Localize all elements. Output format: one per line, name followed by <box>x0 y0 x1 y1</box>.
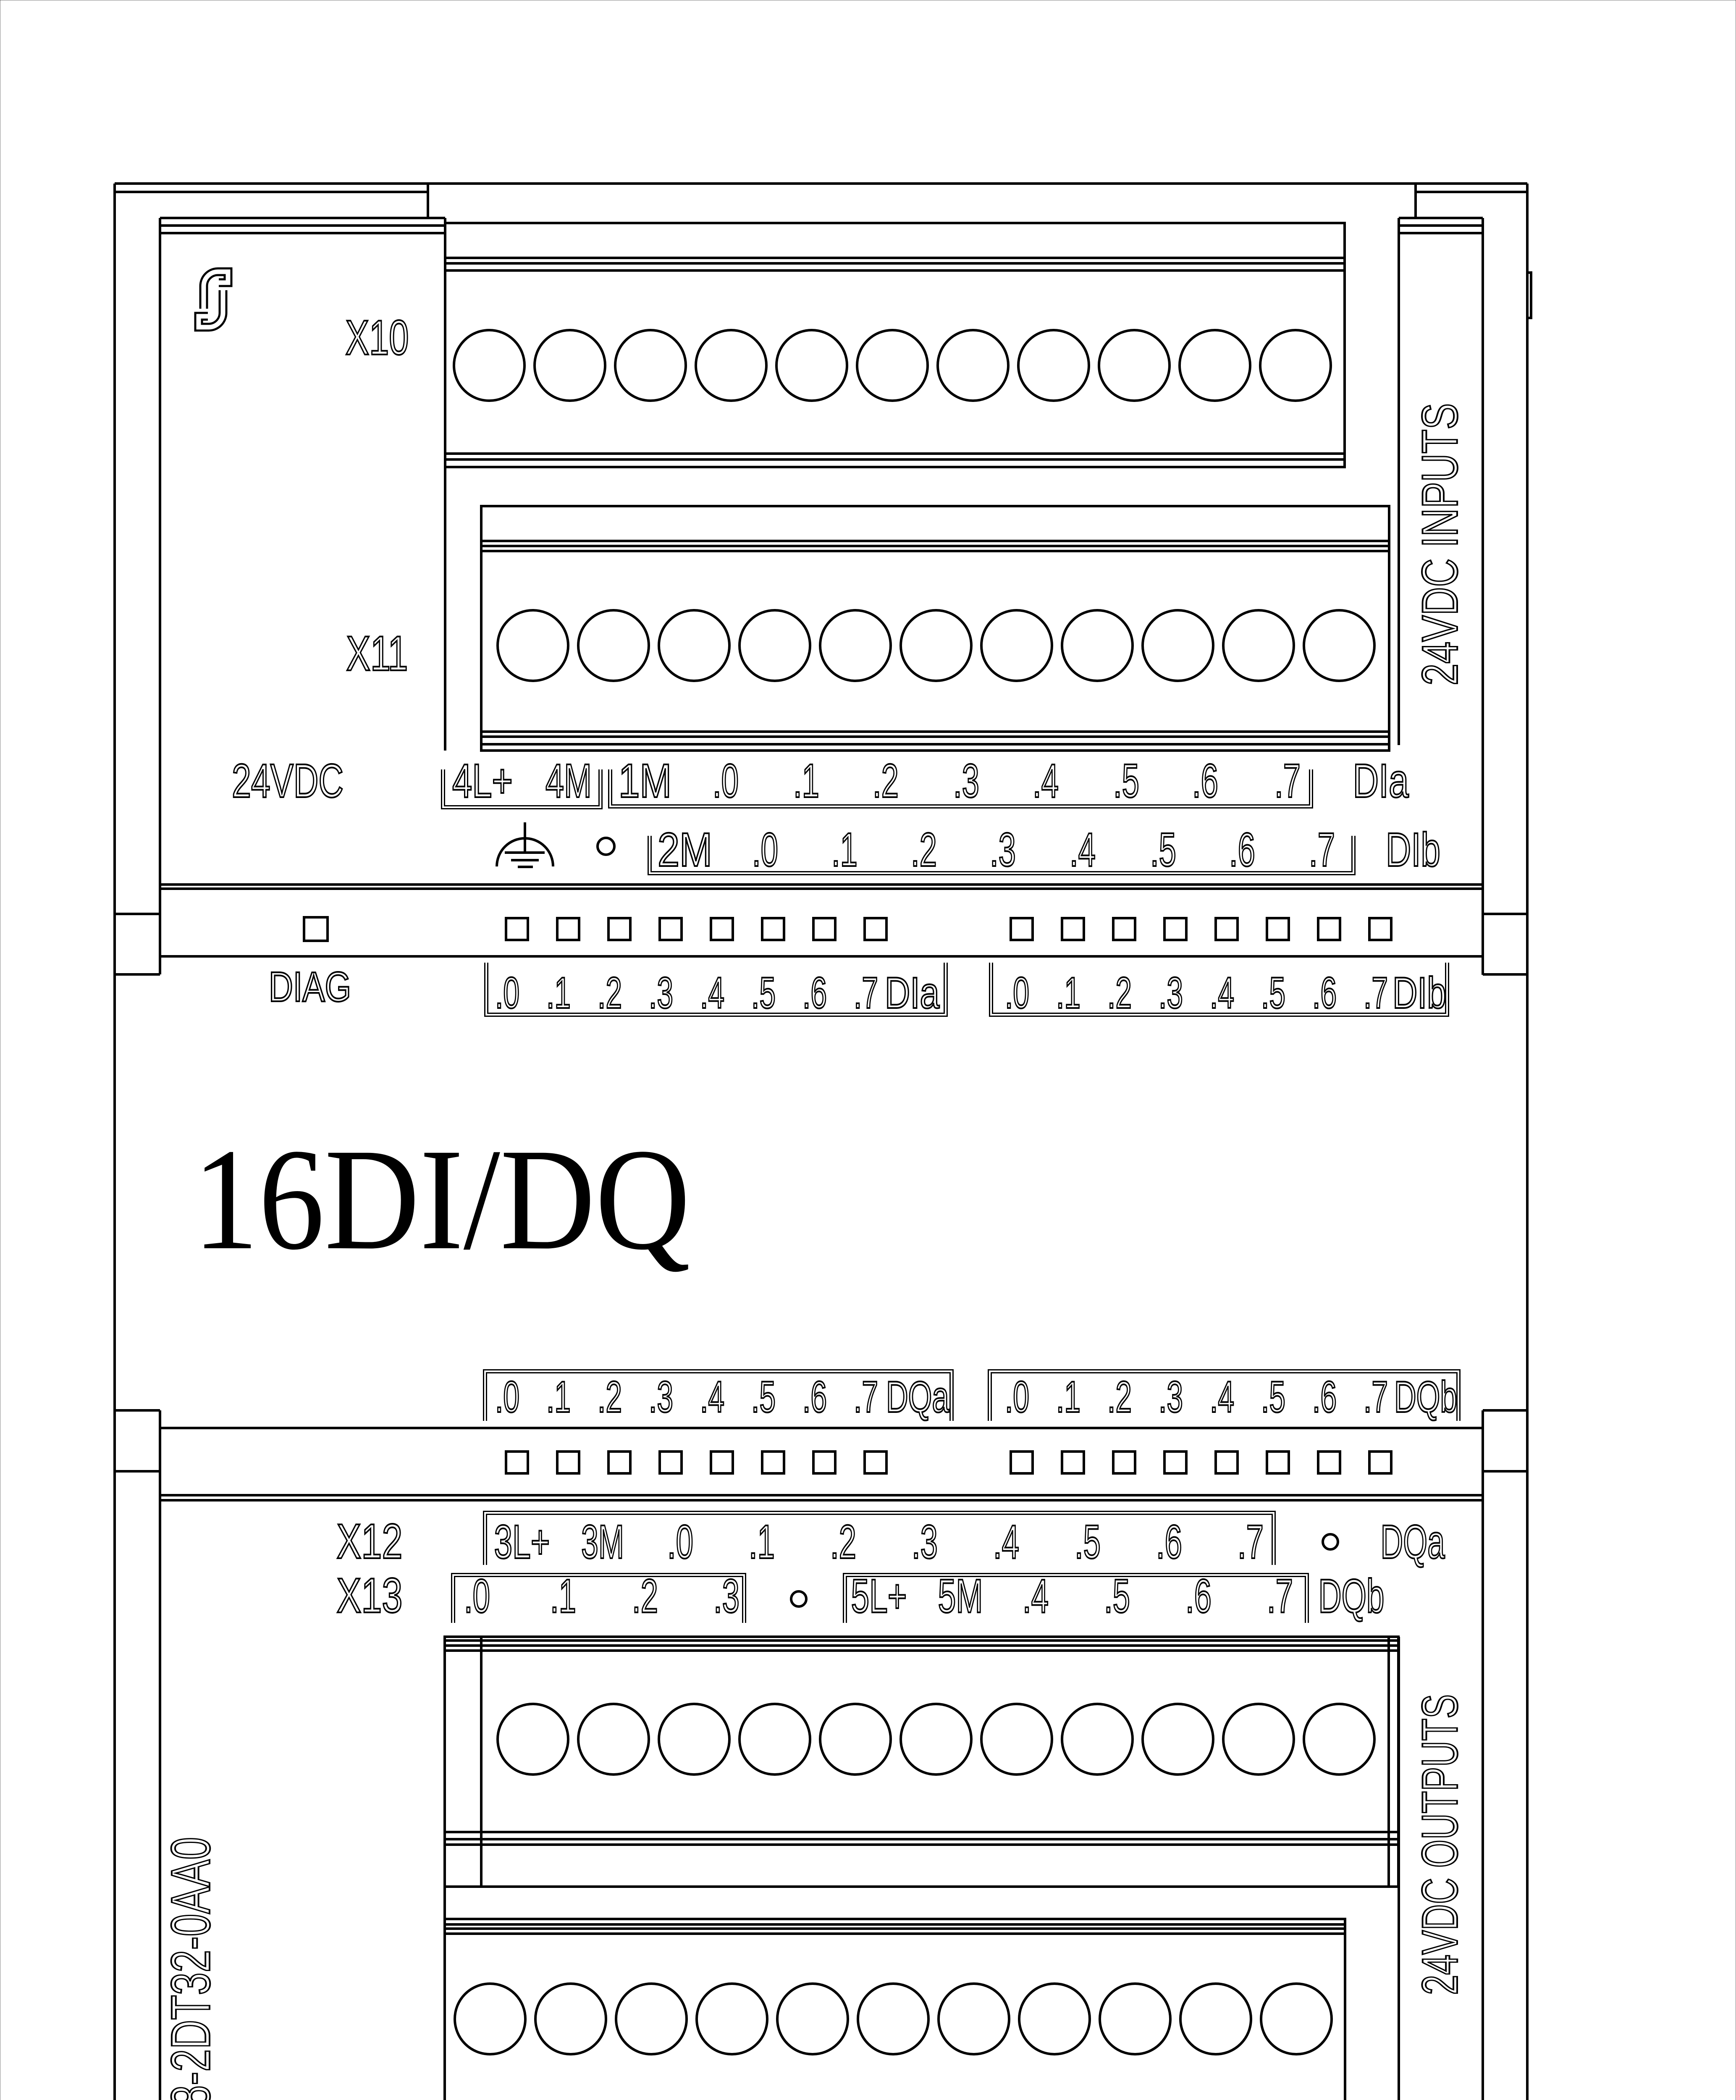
svg-text:.2: .2 <box>632 1570 658 1622</box>
svg-text:.7: .7 <box>1309 823 1335 876</box>
svg-text:.6: .6 <box>1192 754 1218 807</box>
svg-text:.4: .4 <box>700 969 724 1018</box>
svg-text:.5: .5 <box>1150 823 1176 876</box>
svg-text:.6: .6 <box>802 969 827 1018</box>
svg-text:.3: .3 <box>713 1570 740 1622</box>
svg-text:.6: .6 <box>1185 1570 1212 1622</box>
svg-text:.5: .5 <box>1075 1515 1101 1568</box>
svg-text:.4: .4 <box>1023 1570 1049 1622</box>
svg-text:.7: .7 <box>854 969 878 1018</box>
svg-text:.6: .6 <box>1156 1515 1182 1568</box>
svg-text:DIa: DIa <box>885 969 939 1018</box>
svg-text:.0: .0 <box>1005 969 1029 1018</box>
svg-text:DIa: DIa <box>1353 754 1409 807</box>
svg-text:.1: .1 <box>1056 969 1080 1018</box>
svg-text:.7: .7 <box>1274 754 1301 807</box>
svg-text:288-2DT32-0AA0: 288-2DT32-0AA0 <box>160 1837 221 2100</box>
svg-text:.5: .5 <box>1104 1570 1130 1622</box>
svg-text:.3: .3 <box>990 823 1016 876</box>
svg-text:.1: .1 <box>831 823 858 876</box>
svg-text:.0: .0 <box>1005 1373 1029 1422</box>
svg-text:.2: .2 <box>598 1373 622 1422</box>
svg-text:4L+: 4L+ <box>452 754 513 807</box>
svg-text:.3: .3 <box>649 1373 673 1422</box>
svg-text:.5: .5 <box>1261 969 1285 1018</box>
svg-text:.1: .1 <box>546 1373 571 1422</box>
svg-text:.3: .3 <box>953 754 979 807</box>
svg-text:.2: .2 <box>598 969 622 1018</box>
svg-text:5L+: 5L+ <box>851 1570 907 1622</box>
svg-text:.5: .5 <box>751 1373 776 1422</box>
svg-text:.0: .0 <box>495 969 519 1018</box>
svg-text:.7: .7 <box>1267 1570 1293 1622</box>
svg-text:.0: .0 <box>464 1570 490 1622</box>
svg-text:.1: .1 <box>793 754 819 807</box>
svg-text:.2: .2 <box>830 1515 856 1568</box>
svg-text:DIAG: DIAG <box>269 963 351 1011</box>
svg-text:.5: .5 <box>1113 754 1139 807</box>
svg-text:X10: X10 <box>346 310 409 365</box>
svg-text:.4: .4 <box>1210 969 1234 1018</box>
svg-text:.4: .4 <box>1033 754 1059 807</box>
svg-text:5M: 5M <box>938 1570 983 1622</box>
svg-text:.5: .5 <box>751 969 776 1018</box>
svg-text:.2: .2 <box>1107 969 1132 1018</box>
svg-text:.0: .0 <box>667 1515 693 1568</box>
svg-text:.0: .0 <box>752 823 778 876</box>
svg-text:.4: .4 <box>993 1515 1019 1568</box>
svg-text:16DI/DQ: 16DI/DQ <box>193 1119 690 1280</box>
svg-text:.2: .2 <box>873 754 899 807</box>
svg-text:.1: .1 <box>546 969 571 1018</box>
svg-text:3L+: 3L+ <box>494 1515 550 1568</box>
svg-text:DQb: DQb <box>1394 1373 1457 1422</box>
svg-text:.3: .3 <box>1159 1373 1183 1422</box>
svg-text:24VDC: 24VDC <box>232 754 344 807</box>
svg-text:.7: .7 <box>854 1373 878 1422</box>
svg-text:.5: .5 <box>1261 1373 1285 1422</box>
svg-text:.7: .7 <box>1364 1373 1388 1422</box>
svg-text:X12: X12 <box>337 1514 403 1569</box>
svg-text:24VDC OUTPUTS: 24VDC OUTPUTS <box>1412 1694 1468 1995</box>
svg-text:DQb: DQb <box>1319 1570 1385 1622</box>
svg-text:.1: .1 <box>749 1515 775 1568</box>
svg-text:.3: .3 <box>649 969 673 1018</box>
svg-text:.2: .2 <box>911 823 937 876</box>
svg-text:3M: 3M <box>581 1515 624 1568</box>
svg-text:.2: .2 <box>1107 1373 1132 1422</box>
svg-text:DQa: DQa <box>886 1373 949 1422</box>
svg-text:DIb: DIb <box>1392 969 1446 1018</box>
svg-text:.0: .0 <box>713 754 739 807</box>
svg-text:.4: .4 <box>1210 1373 1234 1422</box>
svg-text:.6: .6 <box>1312 1373 1337 1422</box>
svg-text:4M: 4M <box>545 754 592 807</box>
svg-text:.6: .6 <box>802 1373 827 1422</box>
svg-text:.3: .3 <box>912 1515 938 1568</box>
svg-text:1M: 1M <box>619 754 671 807</box>
svg-text:DIb: DIb <box>1386 823 1440 876</box>
svg-text:.1: .1 <box>550 1570 576 1622</box>
svg-text:.7: .7 <box>1238 1515 1264 1568</box>
svg-text:24VDC INPUTS: 24VDC INPUTS <box>1412 403 1468 685</box>
svg-text:.4: .4 <box>700 1373 724 1422</box>
svg-text:.4: .4 <box>1070 823 1096 876</box>
svg-text:.6: .6 <box>1312 969 1337 1018</box>
svg-text:X11: X11 <box>346 626 408 681</box>
svg-text:.6: .6 <box>1229 823 1255 876</box>
svg-text:DQa: DQa <box>1381 1515 1445 1568</box>
svg-text:.7: .7 <box>1364 969 1388 1018</box>
svg-text:.0: .0 <box>495 1373 519 1422</box>
svg-text:.1: .1 <box>1056 1373 1080 1422</box>
svg-text:X13: X13 <box>337 1568 403 1623</box>
svg-text:.3: .3 <box>1159 969 1183 1018</box>
svg-text:2M: 2M <box>658 823 712 876</box>
